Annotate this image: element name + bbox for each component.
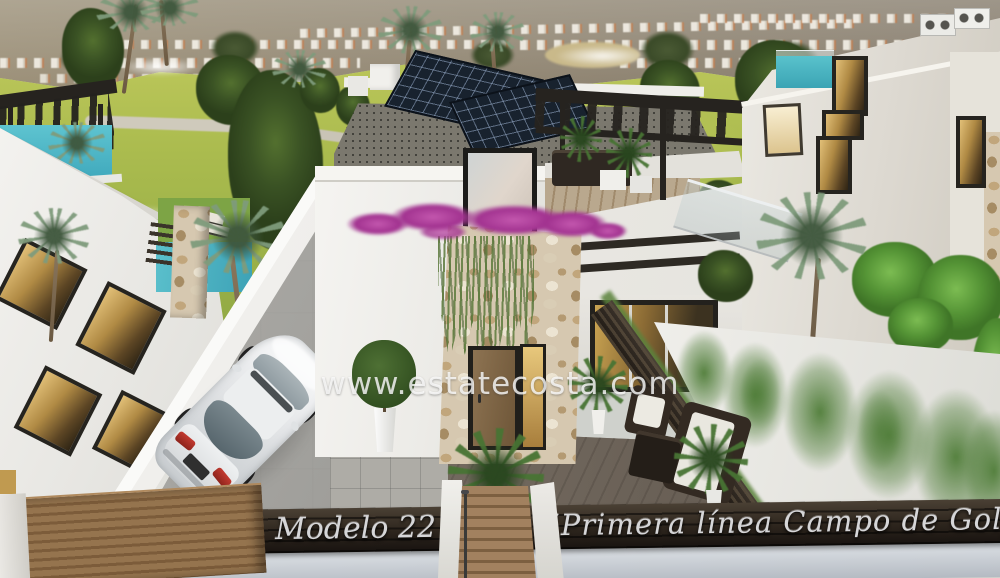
right-villa-bright-window — [763, 103, 804, 157]
bougainvillea — [418, 224, 468, 240]
palm-top — [18, 208, 90, 264]
ivy-patch — [858, 390, 902, 472]
gate-lit-window — [0, 470, 16, 494]
terrace-plant — [560, 116, 602, 162]
steps-handrail — [464, 492, 467, 578]
right-villa-window — [832, 56, 868, 116]
steps-handrail-knob — [461, 490, 469, 494]
palm-top — [272, 50, 327, 88]
potted-fern — [674, 424, 748, 494]
palm-top — [756, 192, 868, 280]
rooftop-pool — [776, 56, 834, 88]
sprinkler-mist — [555, 46, 650, 66]
terrace-planter — [630, 176, 652, 193]
watermark-text: www.estatecosta.com — [0, 366, 1000, 402]
hill-houses-row — [90, 40, 510, 49]
right-villa-window — [816, 136, 852, 194]
pergola-post — [660, 102, 666, 200]
ac-unit — [920, 14, 956, 36]
garden-tree — [698, 250, 753, 302]
wooden-gate — [21, 483, 266, 578]
model-label: Modelo 22 — [275, 510, 433, 547]
villa-chimney — [348, 76, 368, 96]
plant-pot — [590, 410, 607, 434]
bougainvillea — [588, 222, 628, 240]
far-right-window — [956, 116, 986, 188]
render-scene: Modelo 22 “Primera línea Campo de Golf” … — [0, 0, 1000, 578]
gate-post — [0, 493, 30, 578]
rooftop-pool-glass — [776, 50, 834, 56]
sprinkler-mist — [120, 58, 200, 76]
palm-top — [378, 6, 443, 54]
steps-treads — [458, 486, 536, 578]
terrace-planter — [600, 170, 626, 190]
slogan-label: “Primera línea Campo de Golf” — [545, 502, 1000, 542]
ac-unit — [954, 8, 990, 29]
palm-top — [470, 12, 525, 52]
